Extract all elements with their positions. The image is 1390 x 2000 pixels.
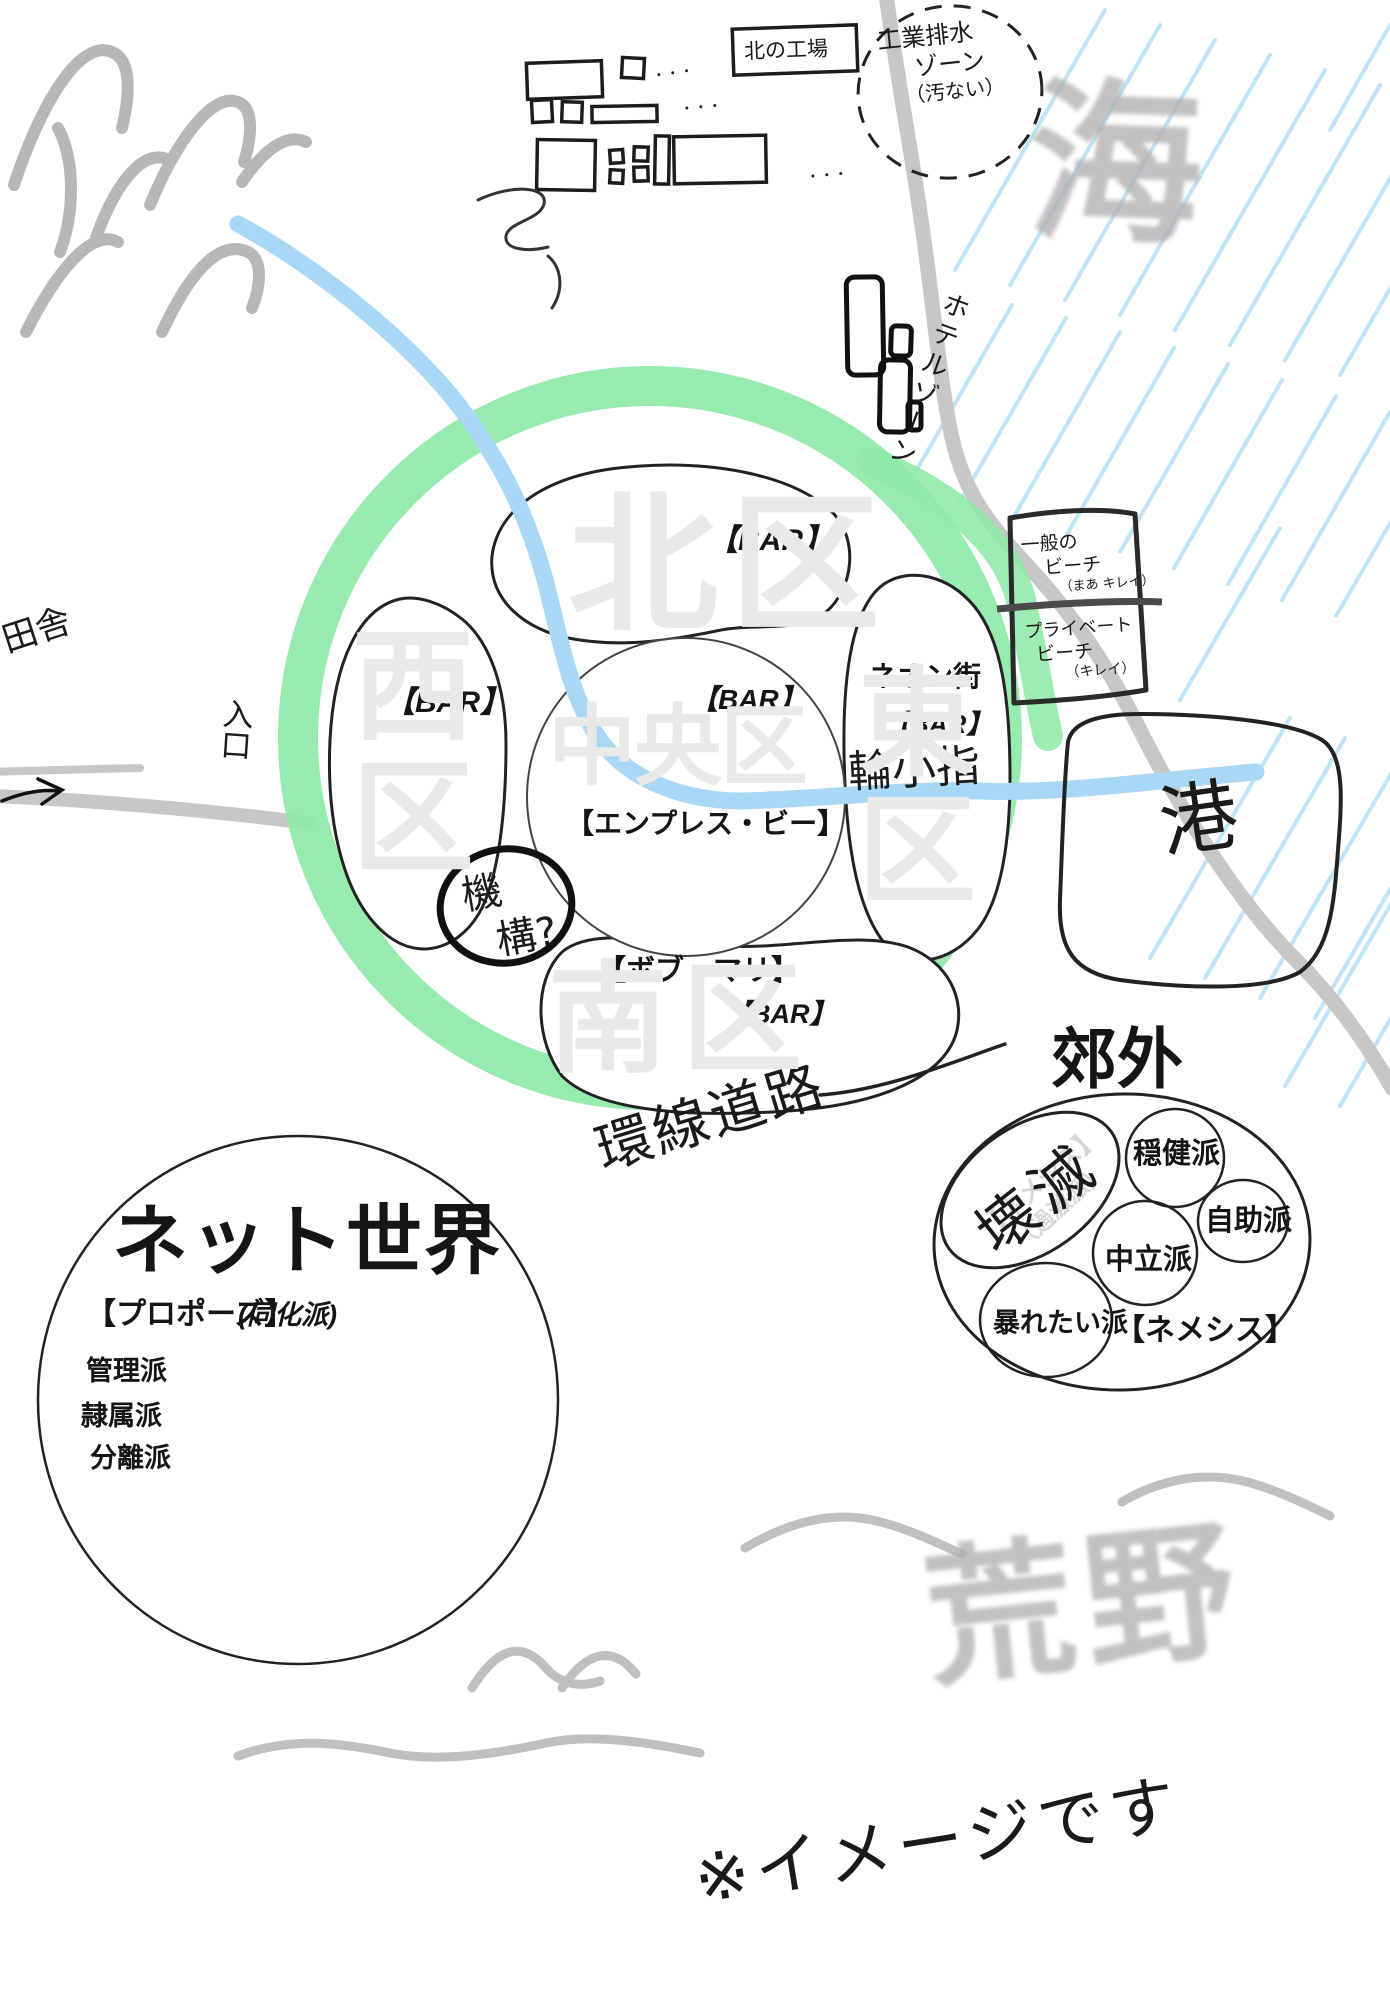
industrial-zone-label: 工業排水 ゾーン （汚ない） — [876, 14, 1006, 111]
net-world-main-note: (同化派) — [238, 1299, 337, 1333]
faction-rampage-label: 暴れたい派 — [993, 1307, 1128, 1341]
factory-label: 北の工場 — [744, 36, 829, 65]
sea-label: 海 — [1024, 55, 1207, 280]
faction-moderate-label: 穏健派 — [1133, 1136, 1220, 1172]
hand-drawn-city-map: 北区 西区 中央区 東区 南区 【ネメシス】 （過激派） — [0, 0, 1390, 2000]
destroyed-note-label: 壊滅 — [962, 1128, 1115, 1271]
more-buildings-dots: ・・・ — [679, 98, 722, 119]
net-world-title: ネット世界 — [112, 1194, 502, 1289]
ward-name-west: 西区 — [352, 622, 478, 886]
port-label: 港 — [1154, 767, 1245, 874]
ward-name-north: 北区 — [568, 472, 892, 660]
hotel-zone-label: ホテルゾーン — [878, 286, 973, 472]
ward-name-south: 南区 — [548, 945, 816, 1095]
faction-neutral-label: 中立派 — [1105, 1242, 1192, 1278]
ward-name-east: 東区 — [858, 662, 980, 917]
beach-private-line3: （キレイ） — [1065, 660, 1136, 682]
beach-private-label: プライベート ビーチ （キレイ） — [1024, 614, 1136, 685]
entrance-label: 入口 — [212, 697, 255, 762]
beach-general-label: 一般の ビーチ （まあ キレイ） — [1020, 526, 1155, 599]
net-faction-servitude: 隷属派 — [81, 1400, 162, 1434]
countryside-label: 田舎 — [0, 600, 77, 663]
more-buildings-dots: ・・・ — [805, 166, 848, 187]
venue-central-label: 【エンプレス・ビー】 — [566, 806, 845, 841]
suburbs-alliance-label: 【ネメシス】 — [1115, 1312, 1295, 1350]
faction-self-help-label: 自助派 — [1205, 1203, 1292, 1239]
wasteland-label: 荒野 — [916, 1496, 1254, 1716]
net-faction-management: 管理派 — [86, 1355, 167, 1389]
more-buildings-dots: ・・・ — [651, 63, 695, 86]
suburbs-title: 郊外 — [1051, 1018, 1183, 1101]
ward-name-central: 中央区 — [548, 692, 806, 802]
net-faction-separation: 分離派 — [90, 1442, 171, 1476]
disclaimer-note: ※イメージです — [689, 1764, 1188, 1922]
